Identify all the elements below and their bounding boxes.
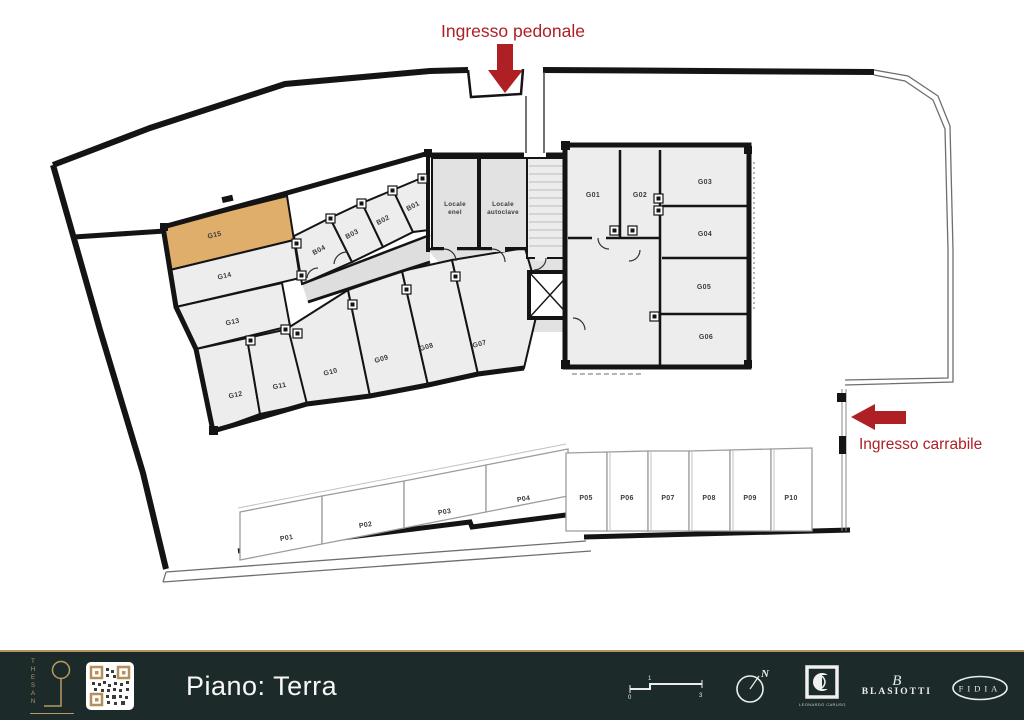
blasiotti-monogram: B	[862, 675, 932, 687]
door-gap	[592, 233, 606, 240]
floorplan-page: Ingresso pedonale Ingresso carrabile G15…	[0, 0, 1024, 720]
room-label-g04: G04	[698, 231, 712, 238]
room-label-g06: G06	[699, 334, 713, 341]
boundary-bottom	[163, 541, 591, 582]
parking-p06[interactable]	[607, 451, 648, 531]
room-label-g01: G01	[586, 192, 600, 199]
parking-label-p06: P06	[620, 495, 633, 502]
outer-wall-topright	[543, 70, 874, 72]
vehicle-entrance-arrow	[851, 404, 906, 430]
parking-p02[interactable]	[322, 481, 404, 544]
room-label-enel-1: Locale	[444, 201, 466, 208]
floor-title: Piano: Terra	[186, 671, 337, 702]
pedestrian-entrance-arrow	[488, 44, 523, 93]
parking-label-p10: P10	[784, 495, 797, 502]
pedestrian-entrance-label: Ingresso pedonale	[441, 21, 585, 41]
thesan-wordmark: THESAN	[30, 659, 36, 709]
logo-blasiotti: B BLASIOTTI	[862, 675, 932, 697]
boundary-right	[845, 70, 953, 385]
wall-spur	[74, 231, 165, 237]
stairs	[527, 158, 567, 258]
floor-plan: Ingresso pedonale Ingresso carrabile G15…	[0, 0, 1024, 650]
logo-fidia: FIDIA	[950, 669, 1010, 703]
scale-three: 3	[699, 693, 703, 699]
leonardo-caruso-name: LEONARDO CARUSO	[799, 702, 846, 707]
room-label-enel-2: enel	[448, 209, 462, 216]
parking-label-p09: P09	[743, 495, 756, 502]
thesan-logo: THESAN	[30, 659, 74, 714]
parking-p08[interactable]	[689, 450, 730, 531]
outer-wall-topleft	[53, 70, 468, 165]
boundary-right-inner	[845, 75, 948, 380]
gate-post	[837, 393, 846, 402]
parking-label-p07: P07	[661, 495, 674, 502]
room-label-autoclave-2: autoclave	[487, 209, 519, 216]
logo-leonardo-caruso: LEONARDO CARUSO	[799, 665, 846, 707]
parking-p10[interactable]	[771, 448, 812, 531]
wall-nub	[221, 195, 233, 203]
parking-label-p05: P05	[579, 495, 592, 502]
door-gap	[535, 254, 547, 261]
entrance-corridor	[526, 72, 544, 153]
room-label-g02: G02	[633, 192, 647, 199]
scale-zero: 0	[628, 695, 632, 701]
scale-one: 1	[648, 676, 652, 682]
blasiotti-name: BLASIOTTI	[862, 687, 932, 697]
qr-code	[86, 662, 134, 710]
parking-p09[interactable]	[730, 449, 771, 531]
thesan-monogram-icon	[38, 659, 74, 711]
room-label-autoclave-1: Locale	[492, 201, 514, 208]
gate	[839, 436, 846, 454]
room-label-g05: G05	[697, 284, 711, 291]
parking-p07[interactable]	[648, 451, 689, 531]
compass-icon: N	[733, 665, 775, 707]
footer-bar: THESAN Piano: Terra	[0, 650, 1024, 720]
parking-label-p08: P08	[702, 495, 715, 502]
compass-north-label: N	[760, 668, 770, 680]
vehicle-entrance-label: Ingresso carrabile	[859, 436, 982, 453]
scale-bar: 0 1 3	[625, 670, 707, 702]
leonardo-caruso-mark-icon	[804, 665, 840, 701]
parking-p04[interactable]	[486, 449, 568, 512]
parking-p03[interactable]	[404, 465, 486, 528]
outer-wall-left	[53, 165, 166, 569]
fidia-name: FIDIA	[959, 684, 1002, 694]
fence	[842, 389, 846, 531]
room-label-g03: G03	[698, 179, 712, 186]
parking-p05[interactable]	[566, 452, 607, 531]
